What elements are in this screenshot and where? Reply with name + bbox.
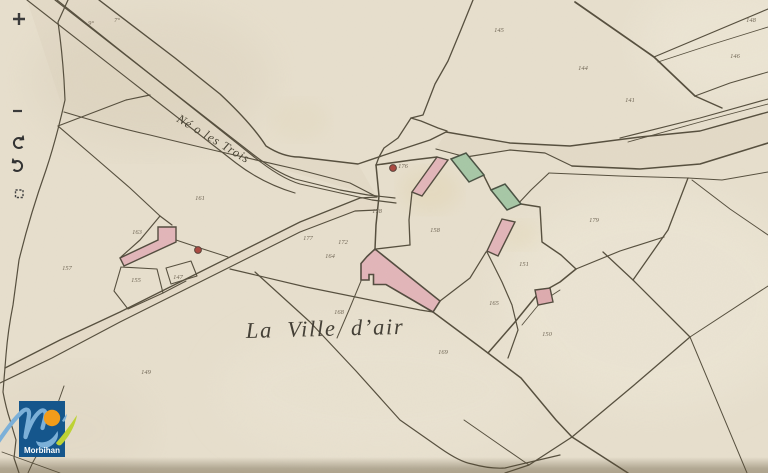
svg-text:Morbihan: Morbihan bbox=[24, 446, 60, 455]
